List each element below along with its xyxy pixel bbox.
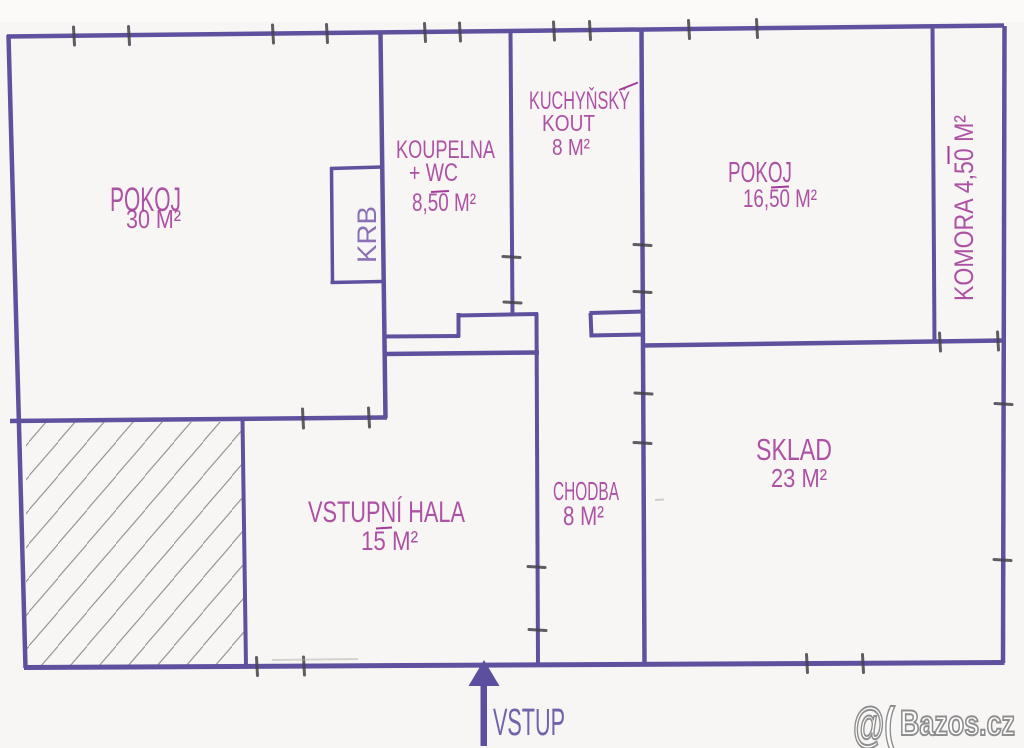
svg-text:23 M²: 23 M² — [771, 463, 827, 493]
svg-text:8,50 M²: 8,50 M² — [412, 189, 476, 217]
svg-text:30 M²: 30 M² — [126, 204, 181, 234]
svg-text:+ WC: + WC — [409, 159, 458, 187]
svg-text:VSTUPNÍ HALA: VSTUPNÍ HALA — [308, 496, 465, 529]
svg-text:@(: @( — [853, 699, 895, 748]
svg-text:Bazos.cz: Bazos.cz — [900, 704, 1015, 743]
svg-text:KOUT: KOUT — [542, 110, 595, 136]
svg-text:SKLAD: SKLAD — [756, 432, 832, 467]
svg-text:KOMORA 4,50 M²: KOMORA 4,50 M² — [949, 115, 979, 301]
svg-text:8 M²: 8 M² — [563, 501, 604, 531]
svg-text:8 M²: 8 M² — [552, 134, 590, 160]
svg-text:16,50 M²: 16,50 M² — [743, 185, 817, 213]
svg-text:15 M²: 15 M² — [361, 526, 418, 556]
svg-text:KRB: KRB — [352, 206, 382, 263]
svg-text:VSTUP: VSTUP — [493, 702, 565, 744]
